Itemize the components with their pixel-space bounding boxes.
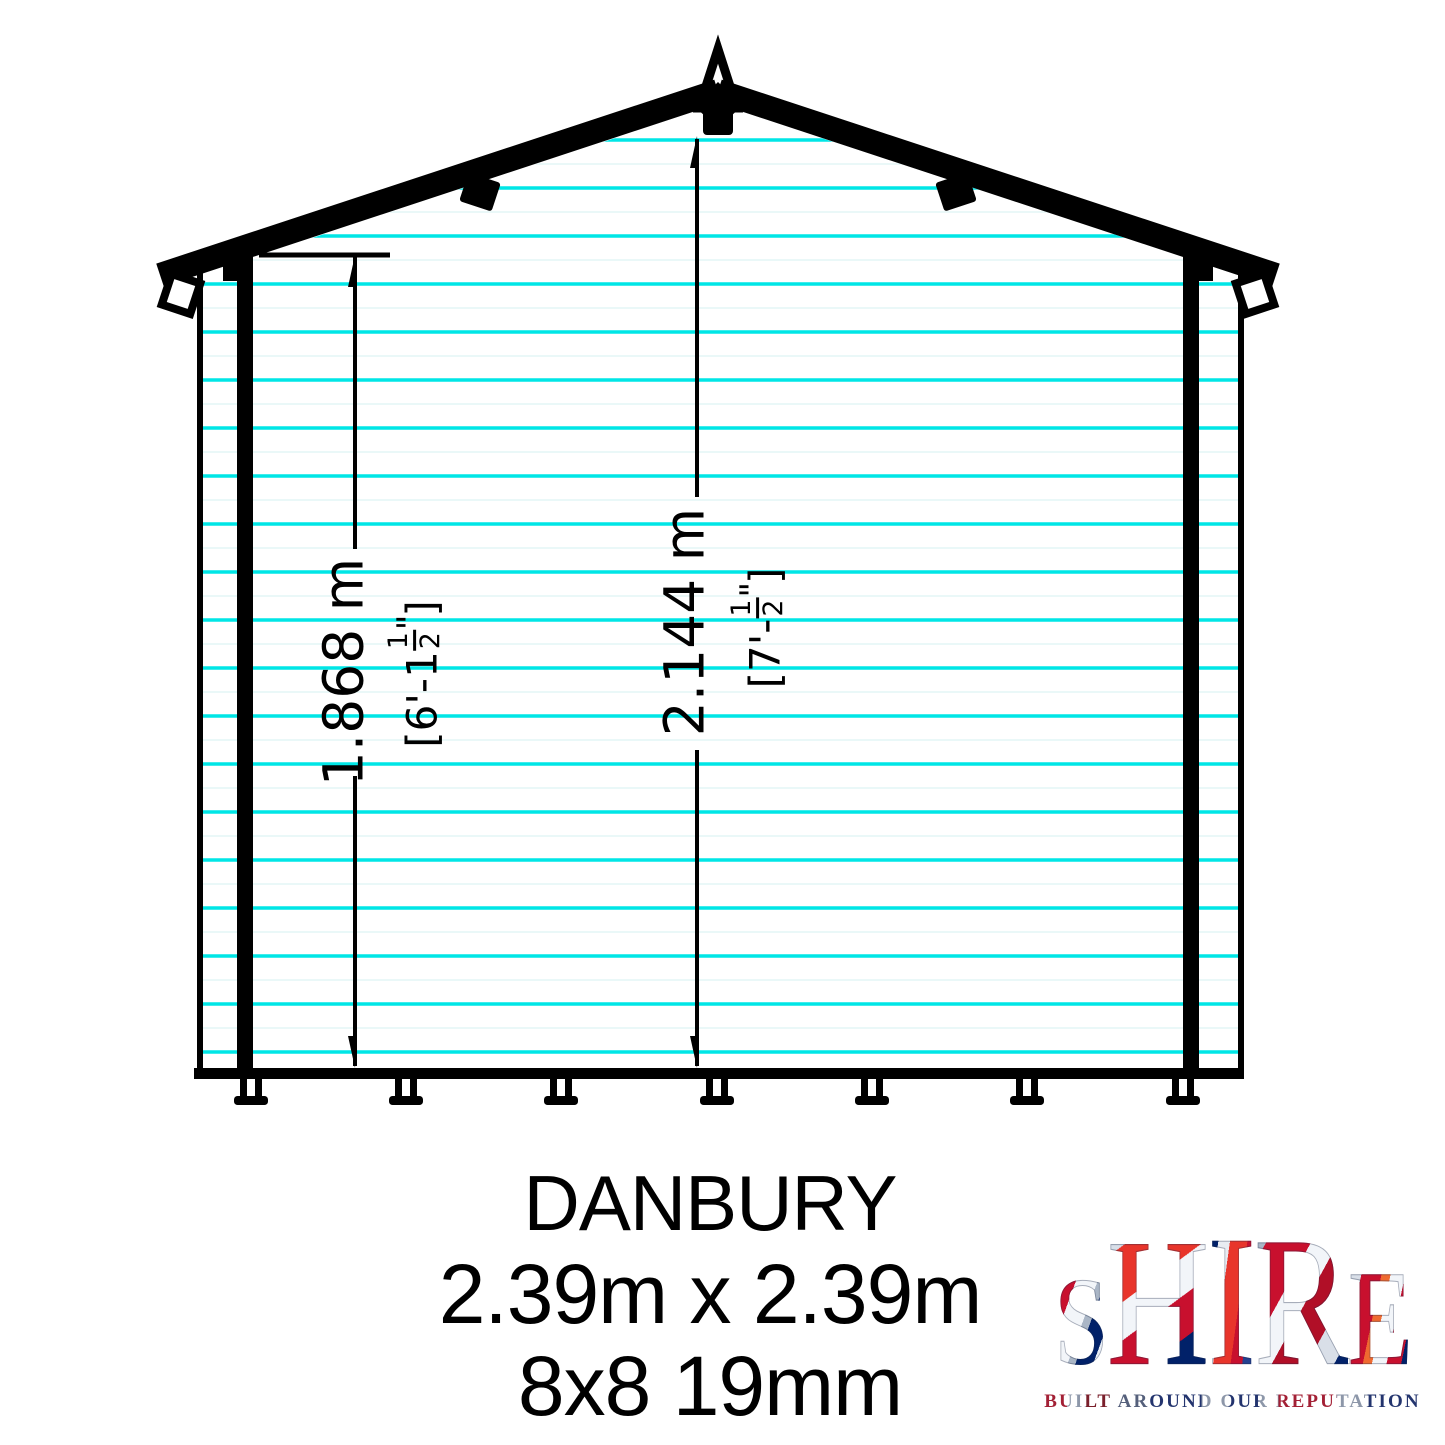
product-spec: 8x8 19mm xyxy=(330,1340,1090,1432)
logo-letter: H xyxy=(1107,1211,1208,1393)
ridge-beam xyxy=(703,90,733,135)
eaves-imp-inch-mark: " xyxy=(390,617,429,630)
shed-elevation-sheet: 1.868 m [6'-112"] 2.144 m [7'-12"] DANBU… xyxy=(0,0,1445,1445)
ridge-imp-close: ] xyxy=(740,568,789,584)
logo-tagline: BUILT AROUND OUR REPUTATION xyxy=(1040,1391,1425,1413)
floor-foot xyxy=(544,1079,578,1105)
shire-logo: S H I R E xyxy=(1040,1207,1425,1389)
eaves-height-metric-label: 1.868 m xyxy=(317,558,372,787)
roof-slope-left xyxy=(160,91,718,275)
corner-post-left xyxy=(237,250,253,1079)
floor-foot xyxy=(855,1079,889,1105)
floor-foot xyxy=(700,1079,734,1105)
product-name: DANBURY xyxy=(330,1158,1090,1248)
fraction-numerator: 1 xyxy=(385,630,416,651)
ridge-height-imperial-label: [7'-12"] xyxy=(728,568,788,689)
wall-left-outer-line xyxy=(197,262,203,1079)
fraction-denominator: 2 xyxy=(760,597,788,618)
floor-feet xyxy=(234,1079,1200,1105)
logo-letter: S xyxy=(1054,1260,1107,1385)
logo-letter: I xyxy=(1207,1207,1254,1394)
corner-post-right xyxy=(1183,250,1199,1079)
shed-elevation-drawing xyxy=(0,0,1445,1140)
floor-foot xyxy=(389,1079,423,1105)
ridge-imp-inch-mark: " xyxy=(733,584,772,597)
eaves-imp-fraction: 12 xyxy=(385,630,445,651)
ridge-imp-open: [7'- xyxy=(740,619,789,689)
fraction-numerator: 1 xyxy=(728,597,759,618)
fascia-left xyxy=(162,274,201,314)
floor-foot xyxy=(1010,1079,1044,1105)
product-size: 2.39m x 2.39m xyxy=(330,1248,1090,1340)
wall-right-outer-line xyxy=(1238,262,1244,1079)
eaves-height-imperial-label: [6'-112"] xyxy=(385,600,445,747)
eaves-imp-open: [6'-1 xyxy=(397,651,446,748)
ridge-height-metric-label: 2.144 m xyxy=(658,508,713,737)
fascia-right xyxy=(1236,274,1275,314)
roof-slope-right xyxy=(718,91,1276,275)
floor-foot xyxy=(1166,1079,1200,1105)
floor-bearer xyxy=(194,1068,1244,1079)
fraction-denominator: 2 xyxy=(417,630,445,651)
logo-letter: R xyxy=(1254,1211,1348,1395)
logo-letter: E xyxy=(1348,1251,1411,1387)
floor-foot xyxy=(234,1079,268,1105)
title-block: DANBURY 2.39m x 2.39m 8x8 19mm xyxy=(330,1158,1090,1432)
ridge-imp-fraction: 12 xyxy=(728,597,788,618)
eaves-imp-close: ] xyxy=(397,600,446,616)
